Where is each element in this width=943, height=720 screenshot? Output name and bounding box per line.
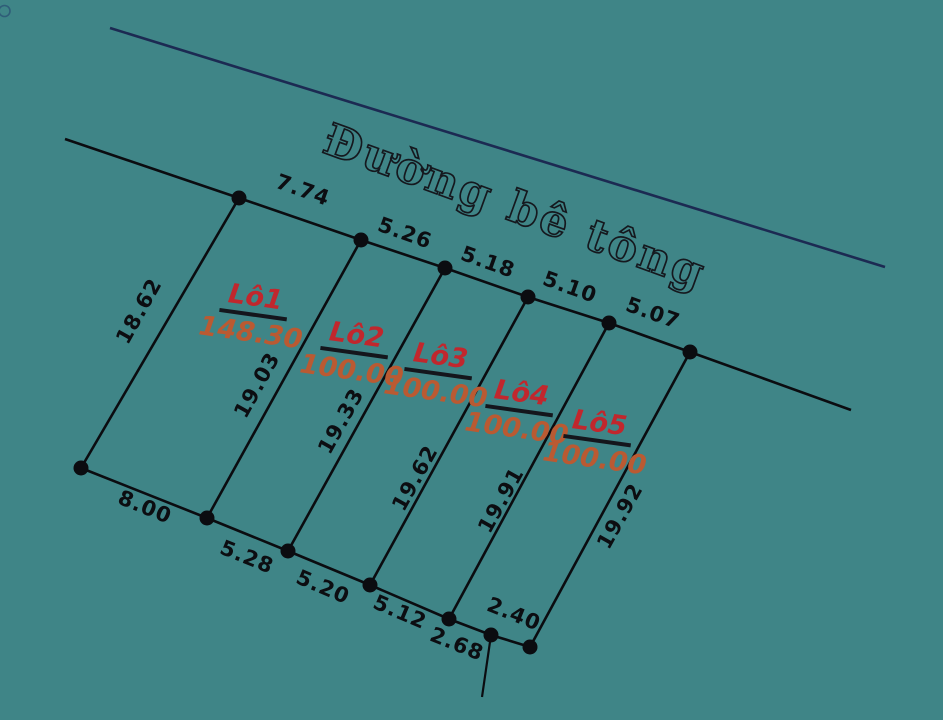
vertex-dot [523,640,538,655]
vertex-dot [232,191,247,206]
corner-circle-mark [0,6,10,17]
vertex-dot [354,233,369,248]
vertex-dot [438,261,453,276]
cadastral-plan: Đường bê tông 7.74 5.26 5.18 5.10 5.07 8… [0,0,943,720]
vertex-dot [442,612,457,627]
vertex-dot [281,544,296,559]
road-edge-upper-line [110,28,885,267]
vertex-dot [521,290,536,305]
lot5-label: Lô5 100.00 [541,403,653,482]
vertex-dot [363,578,378,593]
vertex-dot [74,461,89,476]
vertex-dot [200,511,215,526]
vertex-dot [602,316,617,331]
vertex-dot [484,628,499,643]
lot1-label: Lô1 148.30 [197,277,309,356]
vertex-dot [683,345,698,360]
lot2-lot3-edge [288,268,445,551]
